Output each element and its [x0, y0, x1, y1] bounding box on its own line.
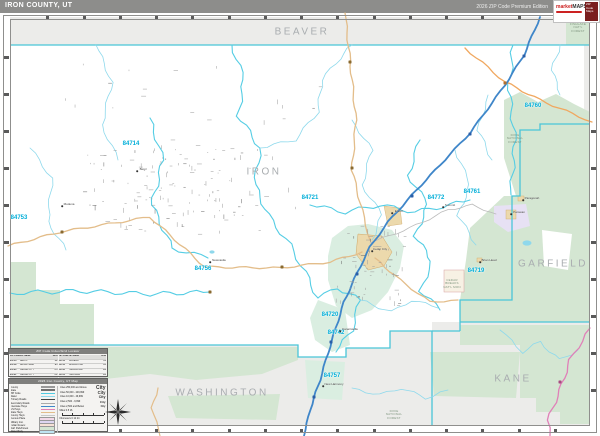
grid-tick	[591, 130, 596, 133]
town-label-beryl: Beryl	[140, 167, 147, 171]
grid-tick	[591, 315, 596, 318]
town-dot	[442, 206, 444, 208]
grid-tick	[336, 16, 339, 19]
forest-label-1: CEDARBREAKSNAT'L MON	[443, 279, 461, 289]
grid-tick	[4, 130, 9, 133]
legend-area-item: Water Body	[11, 430, 55, 433]
zip-label-84760: 84760	[525, 103, 542, 109]
grid-tick	[591, 93, 596, 96]
legend-box: 2026 Iron County, UT Map CountyStateZIP …	[8, 378, 108, 432]
town-dot	[522, 199, 524, 201]
county-label-kane: KANE	[494, 374, 531, 385]
grid-tick	[518, 16, 521, 19]
legend-line-sample	[41, 389, 55, 391]
compass-rose	[104, 398, 132, 426]
grid-tick	[191, 429, 194, 432]
zip-label-84753: 84753	[11, 215, 28, 221]
grid-tick	[4, 93, 9, 96]
grid-tick	[373, 16, 376, 19]
grid-tick	[83, 16, 86, 19]
town-dot	[510, 213, 512, 215]
legend-line-sample	[41, 399, 55, 400]
forest-label-2: DIXIENATIONALFOREST	[386, 410, 402, 420]
legend-line-sample	[41, 396, 55, 397]
grid-tick	[228, 429, 231, 432]
publisher-logo: marketMAPS ZIP Code Maps	[553, 0, 600, 23]
grid-tick	[445, 16, 448, 19]
grid-tick	[373, 429, 376, 432]
county-label-garfield: GARFIELD	[518, 259, 588, 270]
county-label-beaver: BEAVER	[275, 27, 330, 38]
grid-tick	[591, 389, 596, 392]
town-label-parowan: Parowan	[513, 210, 525, 214]
grid-tick	[155, 16, 158, 19]
grid-tick	[591, 56, 596, 59]
grid-tick	[591, 204, 596, 207]
legend-line-sample	[41, 403, 55, 404]
grid-tick	[591, 241, 596, 244]
forest-label-3: FISHLAKENAT'LFOREST	[570, 23, 586, 33]
town-dot	[209, 261, 211, 263]
town-label-summit: Summit	[445, 203, 455, 207]
grid-tick	[591, 352, 596, 355]
town-label-modena: Modena	[64, 202, 75, 206]
zip-index-box: ZIP Code Index/Grid Locator ZIP CodeZIP …	[8, 348, 108, 377]
zip-label-84714: 84714	[123, 141, 140, 147]
town-dot	[136, 170, 138, 172]
grid-tick	[228, 16, 231, 19]
zip-label-84772: 84772	[428, 195, 445, 201]
grid-tick	[4, 315, 9, 318]
grid-tick	[336, 429, 339, 432]
grid-tick	[4, 204, 9, 207]
town-label-new-harmony: New Harmony	[324, 382, 343, 386]
logo-badge: ZIP Code Maps	[585, 2, 598, 21]
grid-tick	[409, 429, 412, 432]
logo-swoosh	[556, 11, 582, 13]
legend-line-sample	[41, 393, 55, 394]
grid-tick	[264, 16, 267, 19]
grid-tick	[191, 16, 194, 19]
town-label-cedar-city: Cedar City	[373, 247, 387, 251]
zip-label-84757: 84757	[324, 373, 341, 379]
grid-tick	[4, 241, 9, 244]
grid-tick	[481, 16, 484, 19]
grid-tick	[445, 429, 448, 432]
legend-line-sample	[41, 412, 55, 413]
town-dot	[391, 212, 393, 214]
county-label-washington: WASHINGTON	[175, 388, 268, 399]
grid-tick	[264, 429, 267, 432]
grid-tick	[591, 278, 596, 281]
grid-tick	[300, 429, 303, 432]
grid-tick	[119, 429, 122, 432]
grid-tick	[119, 16, 122, 19]
map-canvas: { "header": { "title": "IRON COUNTY, UT"…	[0, 0, 600, 436]
grid-tick	[518, 429, 521, 432]
town-label-enoch: Enoch	[395, 209, 404, 213]
town-label-paragonah: Paragonah	[525, 196, 540, 200]
town-label-brian-head: Brian Head	[481, 258, 496, 262]
town-label-kanarraville: Kanarraville	[342, 327, 358, 331]
legend-line-sample	[41, 409, 55, 410]
zip-label-84721: 84721	[302, 195, 319, 201]
zip-label-84720: 84720	[322, 312, 339, 318]
zip-label-84756: 84756	[195, 266, 212, 272]
town-dot	[61, 205, 63, 207]
grid-tick	[300, 16, 303, 19]
grid-tick	[481, 429, 484, 432]
grid-tick	[554, 429, 557, 432]
county-label-iron: IRON	[247, 167, 282, 178]
scale-bar: Miles 0 8 16Kilometers 0 12 24	[60, 409, 106, 424]
town-label-newcastle: Newcastle	[212, 258, 226, 262]
grid-tick	[4, 167, 9, 170]
zip-label-84719: 84719	[468, 268, 485, 274]
grid-tick	[46, 16, 49, 19]
grid-tick	[4, 278, 9, 281]
grid-tick	[409, 16, 412, 19]
grid-tick	[4, 56, 9, 59]
logo-text: marketMAPS	[556, 4, 587, 10]
town-dot	[339, 330, 341, 332]
grid-tick	[591, 167, 596, 170]
legend-city-item: Cities 2,500 and BelowCity	[60, 404, 106, 409]
legend-line-sample	[41, 406, 55, 407]
legend-line-sample	[41, 386, 55, 388]
legend-area-sample	[39, 430, 55, 434]
grid-tick	[155, 429, 158, 432]
zip-label-84761: 84761	[464, 189, 481, 195]
forest-label-0: DIXIENATIONALFOREST	[507, 134, 523, 144]
